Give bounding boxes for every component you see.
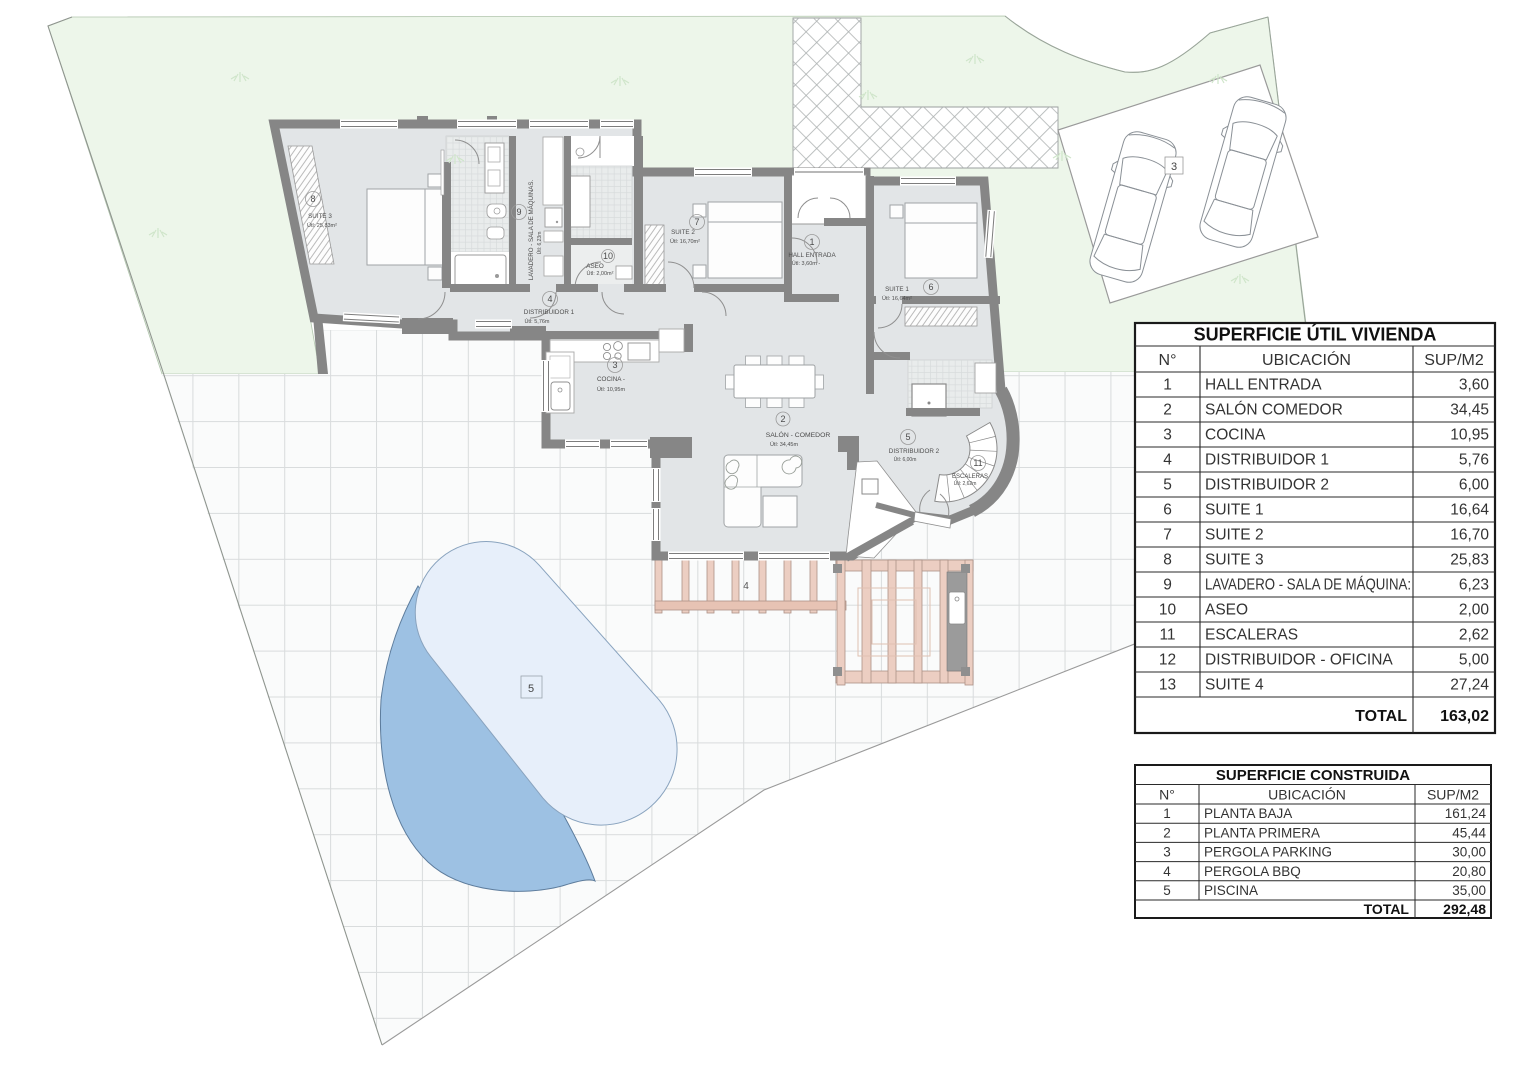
svg-text:Útl: 25,83m²: Útl: 25,83m² — [307, 222, 337, 229]
svg-text:12: 12 — [1159, 652, 1176, 669]
svg-text:3: 3 — [1163, 427, 1172, 444]
svg-text:PLANTA PRIMERA: PLANTA PRIMERA — [1204, 825, 1320, 840]
svg-text:2,00: 2,00 — [1459, 602, 1490, 619]
svg-text:7: 7 — [694, 217, 699, 227]
svg-text:Útl: 16,64m²: Útl: 16,64m² — [882, 295, 912, 302]
svg-text:1: 1 — [1163, 806, 1171, 821]
svg-text:UBICACIÓN: UBICACIÓN — [1262, 350, 1351, 369]
svg-text:3: 3 — [612, 360, 617, 370]
svg-text:16,70: 16,70 — [1450, 527, 1489, 544]
svg-text:ESCALERAS: ESCALERAS — [1205, 627, 1298, 644]
svg-text:10,95: 10,95 — [1450, 427, 1489, 444]
svg-text:N°: N° — [1159, 787, 1175, 803]
svg-text:3: 3 — [1171, 161, 1177, 173]
svg-text:SALÓN COMEDOR: SALÓN COMEDOR — [1205, 402, 1343, 419]
svg-text:4: 4 — [1163, 452, 1172, 469]
svg-text:Útl: 3,60m -: Útl: 3,60m - — [792, 260, 821, 267]
svg-text:6,23: 6,23 — [1459, 577, 1489, 594]
svg-text:DISTRIBUIDOR 1: DISTRIBUIDOR 1 — [1205, 452, 1329, 469]
svg-text:25,83: 25,83 — [1450, 552, 1489, 569]
svg-text:SUITE 3: SUITE 3 — [1205, 552, 1264, 569]
svg-text:SUITE 1: SUITE 1 — [885, 286, 909, 293]
svg-text:ESCALERAS: ESCALERAS — [952, 474, 988, 480]
svg-text:PERGOLA BBQ: PERGOLA BBQ — [1204, 864, 1301, 879]
svg-text:Útl: 5,76m: Útl: 5,76m — [524, 318, 549, 325]
svg-text:SUITE 1: SUITE 1 — [1205, 502, 1264, 519]
svg-text:292,48: 292,48 — [1443, 901, 1486, 917]
svg-text:N°: N° — [1159, 352, 1177, 369]
svg-text:27,24: 27,24 — [1450, 677, 1489, 694]
svg-text:16,64: 16,64 — [1450, 502, 1489, 519]
svg-text:163,02: 163,02 — [1440, 708, 1489, 725]
svg-text:20,80: 20,80 — [1452, 864, 1486, 879]
svg-text:SUITE 2: SUITE 2 — [671, 229, 695, 236]
svg-text:SUPERFICIE ÚTIL VIVIENDA: SUPERFICIE ÚTIL VIVIENDA — [1194, 324, 1437, 345]
svg-text:COCINA: COCINA — [1205, 427, 1266, 444]
svg-text:7: 7 — [1163, 527, 1172, 544]
svg-text:2,62: 2,62 — [1459, 627, 1489, 644]
svg-text:Útl: 6,00m: Útl: 6,00m — [894, 456, 917, 463]
svg-text:4: 4 — [1163, 864, 1171, 879]
svg-text:5: 5 — [528, 683, 534, 695]
svg-text:HALL ENTRADA: HALL ENTRADA — [788, 252, 836, 259]
svg-text:2: 2 — [780, 414, 785, 424]
svg-text:45,44: 45,44 — [1452, 825, 1486, 840]
svg-text:10: 10 — [1159, 602, 1177, 619]
svg-text:10: 10 — [603, 251, 613, 261]
svg-text:DISTRIBUIDOR 2: DISTRIBUIDOR 2 — [1205, 477, 1329, 494]
svg-text:35,00: 35,00 — [1452, 883, 1486, 898]
svg-text:9: 9 — [516, 207, 521, 217]
svg-text:LAVADERO - SALA DE MÁQUINA:: LAVADERO - SALA DE MÁQUINA: — [1205, 577, 1411, 594]
svg-text:Útl: 34,45m: Útl: 34,45m — [770, 441, 799, 448]
svg-text:COCINA -: COCINA - — [597, 376, 625, 383]
svg-text:8: 8 — [310, 194, 315, 204]
svg-text:ASEO: ASEO — [586, 263, 604, 270]
svg-text:SUITE 3: SUITE 3 — [308, 213, 332, 220]
svg-text:SUPERFICIE CONSTRUIDA: SUPERFICIE CONSTRUIDA — [1216, 767, 1410, 784]
svg-text:2: 2 — [1163, 402, 1172, 419]
svg-text:SUITE 4: SUITE 4 — [1205, 677, 1264, 694]
svg-text:3: 3 — [1163, 845, 1171, 860]
svg-text:6,00: 6,00 — [1459, 477, 1490, 494]
svg-text:TOTAL: TOTAL — [1364, 901, 1410, 917]
svg-text:SUITE 2: SUITE 2 — [1205, 527, 1264, 544]
svg-text:Útl: 2,00m²: Útl: 2,00m² — [587, 270, 614, 277]
svg-text:161,24: 161,24 — [1445, 806, 1487, 821]
svg-text:UBICACIÓN: UBICACIÓN — [1268, 787, 1346, 803]
svg-text:9: 9 — [1163, 577, 1172, 594]
svg-text:Útl: 16,70m²: Útl: 16,70m² — [670, 238, 700, 245]
svg-text:5: 5 — [905, 432, 910, 442]
svg-text:4: 4 — [547, 294, 552, 304]
svg-text:11: 11 — [973, 458, 982, 468]
svg-text:8: 8 — [1163, 552, 1172, 569]
svg-text:5: 5 — [1163, 477, 1172, 494]
svg-text:5,76: 5,76 — [1459, 452, 1489, 469]
svg-text:Útl: 2,62m: Útl: 2,62m — [954, 480, 977, 487]
svg-text:PERGOLA PARKING: PERGOLA PARKING — [1204, 845, 1332, 860]
svg-text:6: 6 — [928, 282, 933, 292]
svg-text:LAVADERO - SALA DE MÁQUINAS.: LAVADERO - SALA DE MÁQUINAS. — [528, 179, 535, 280]
svg-text:4: 4 — [743, 581, 749, 592]
svg-text:2: 2 — [1163, 825, 1171, 840]
svg-text:DISTRIBUIDOR - OFICINA: DISTRIBUIDOR - OFICINA — [1205, 652, 1393, 669]
svg-text:HALL ENTRADA: HALL ENTRADA — [1205, 377, 1322, 394]
svg-text:TOTAL: TOTAL — [1355, 708, 1407, 725]
svg-text:PLANTA BAJA: PLANTA BAJA — [1204, 806, 1292, 821]
svg-text:SUP/M2: SUP/M2 — [1427, 787, 1479, 803]
svg-text:Útl: 6,23m: Útl: 6,23m — [536, 232, 543, 255]
svg-text:11: 11 — [1159, 627, 1175, 644]
svg-text:DISTRIBUIDOR 1: DISTRIBUIDOR 1 — [524, 309, 575, 316]
svg-text:5: 5 — [1163, 883, 1171, 898]
svg-text:3,60: 3,60 — [1459, 377, 1490, 394]
svg-text:Útl: 10,95m: Útl: 10,95m — [597, 386, 626, 393]
svg-text:SUP/M2: SUP/M2 — [1424, 352, 1484, 369]
svg-text:30,00: 30,00 — [1452, 845, 1486, 860]
svg-text:5,00: 5,00 — [1459, 652, 1490, 669]
svg-text:ASEO: ASEO — [1205, 602, 1248, 619]
svg-text:13: 13 — [1159, 677, 1176, 694]
svg-text:SALÓN - COMEDOR: SALÓN - COMEDOR — [766, 430, 831, 439]
svg-text:1: 1 — [809, 237, 814, 247]
svg-text:DISTRIBUIDOR 2: DISTRIBUIDOR 2 — [889, 448, 940, 455]
svg-text:34,45: 34,45 — [1450, 402, 1489, 419]
svg-text:PISCINA: PISCINA — [1204, 883, 1258, 898]
svg-text:1: 1 — [1163, 377, 1172, 394]
svg-text:6: 6 — [1163, 502, 1172, 519]
